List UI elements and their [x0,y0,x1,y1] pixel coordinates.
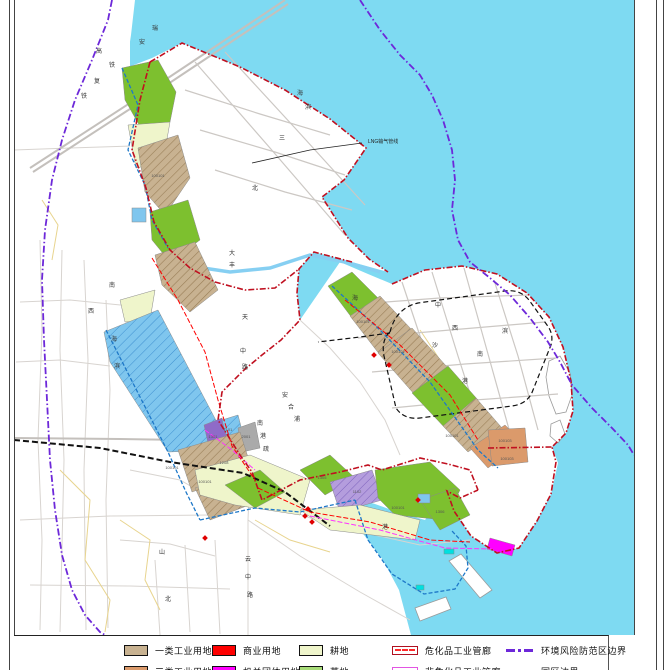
parcel-id-label: 1102 [353,489,362,494]
legend-swatch [212,645,236,656]
legend-label: 园区边界 [541,665,579,670]
legend-label: 一类工业用地 [155,644,212,657]
pond [132,208,146,222]
legend-item: 环境风险防范区边界 [506,642,627,658]
legend-swatch [212,666,236,670]
legend-label: 非危化品工业管廊 [425,665,501,670]
parcel-id-label: 100101 [391,349,405,354]
road-name-label: 海 [111,335,117,343]
parcel-id-label: 100101 [198,479,212,484]
road-name-label: 中 [435,301,441,309]
road-name-label: 海 [297,89,303,97]
road-name-label: 安 [139,38,145,46]
legend-swatch [124,645,148,656]
parcel-id-label: 100101 [165,465,179,470]
legend-item: 机关团体用地 [212,663,300,670]
legend-label: 环境风险防范区边界 [541,644,627,657]
map-canvas: LNG输气管线 瑞安高铁复铁南西海滨大丰天中路安合浦南港疏海中沙西南港滨云中路山… [0,0,670,670]
road-name-label: 云 [245,556,251,563]
road-name-label: 港 [260,432,266,440]
legend-swatch [299,666,323,670]
road-name-label: 瑞 [152,24,158,32]
parcel-id-label: 100103 [498,438,512,443]
road-name-label: 南 [109,281,115,289]
road-name-label: 铁 [81,92,87,100]
road-name-label: 安 [282,391,288,399]
legend-swatch [124,666,148,670]
legend-label: 危化品工业管廊 [425,644,492,657]
legend-item: 非危化品工业管廊 [392,663,501,670]
legend-corridor-symbol [392,646,418,655]
road-name-label: 滨 [502,327,508,335]
parcel-id-label: 2001 [242,434,252,439]
road-name-label: 合 [288,403,294,411]
legend-item: 园区边界 [506,663,579,670]
road-name-label: 路 [247,591,253,599]
road-name-label: 滨 [305,103,311,111]
parcel-id-label: 1305 [318,475,328,480]
parcel-id-label: 100103 [500,456,514,461]
legend-item: 一类工业用地 [124,642,212,658]
pond [418,494,430,503]
parcel-id-label: 1208 [220,460,230,465]
legend-label: 耕地 [330,644,349,657]
legend-label: 机关团体用地 [243,665,300,670]
parcel-id-label: 100101 [356,319,370,324]
legend: 一类工业用地商业用地耕地危化品工业管廊环境风险防范区边界三类工业用地机关团体用地… [14,635,609,670]
cyan-strip [444,549,454,554]
road-name-label: 大 [229,249,235,257]
road-name-label: 滨 [114,362,120,370]
legend-swatch [299,645,323,656]
parcel-id-label: 1306 [436,509,446,514]
legend-corridor-symbol [392,667,418,670]
parcel-id-label: 100101 [445,433,459,438]
road-name-label: 浦 [294,415,300,423]
legend-label: 三类工业用地 [155,665,212,670]
road-name-label: 丰 [229,261,235,269]
road-name-label: 三 [279,135,285,142]
parcel-id-label: 1301 [209,434,219,439]
lng-pipeline-label: LNG输气管线 [368,138,398,145]
planning-map-page: LNG输气管线 瑞安高铁复铁南西海滨大丰天中路安合浦南港疏海中沙西南港滨云中路山… [0,0,670,670]
legend-item: 三类工业用地 [124,663,212,670]
road-name-label: 港 [462,377,468,385]
road-name-label: 铁 [109,61,115,69]
road-name-label: 西 [452,325,458,332]
road-name-label: 疏 [263,445,269,453]
road-name-label: 西 [88,308,94,315]
road-name-label: 中 [240,347,246,355]
road-name-label: 南 [257,419,263,427]
legend-item: 商业用地 [212,642,281,658]
road-name-label: 中 [245,573,251,581]
legend-item: 耕地 [299,642,349,658]
road-name-label: 天 [242,314,248,321]
road-name-label: 山 [159,548,165,556]
road-name-label: 沙 [432,342,438,349]
legend-label: 商业用地 [243,644,281,657]
road-name-label: 海 [352,294,358,302]
road-name-label: 复 [94,77,100,85]
legend-boundary-symbol [506,649,534,652]
road-name-label: 北 [252,184,258,192]
road-name-label: 路 [242,363,248,371]
road-name-label: 南 [477,350,483,358]
legend-item: 危化品工业管廊 [392,642,492,658]
parcel-id-label: 100101 [391,505,405,510]
parcel-id-label: 1101 [224,427,233,432]
parcel-id-label: 100101 [151,173,165,178]
legend-item: 草地 [299,663,349,670]
road-name-label: 高 [96,47,102,55]
cyan-strip [416,585,424,590]
legend-label: 草地 [330,665,349,670]
road-name-label: 北 [165,595,171,603]
road-name-label: 港 [382,523,388,531]
